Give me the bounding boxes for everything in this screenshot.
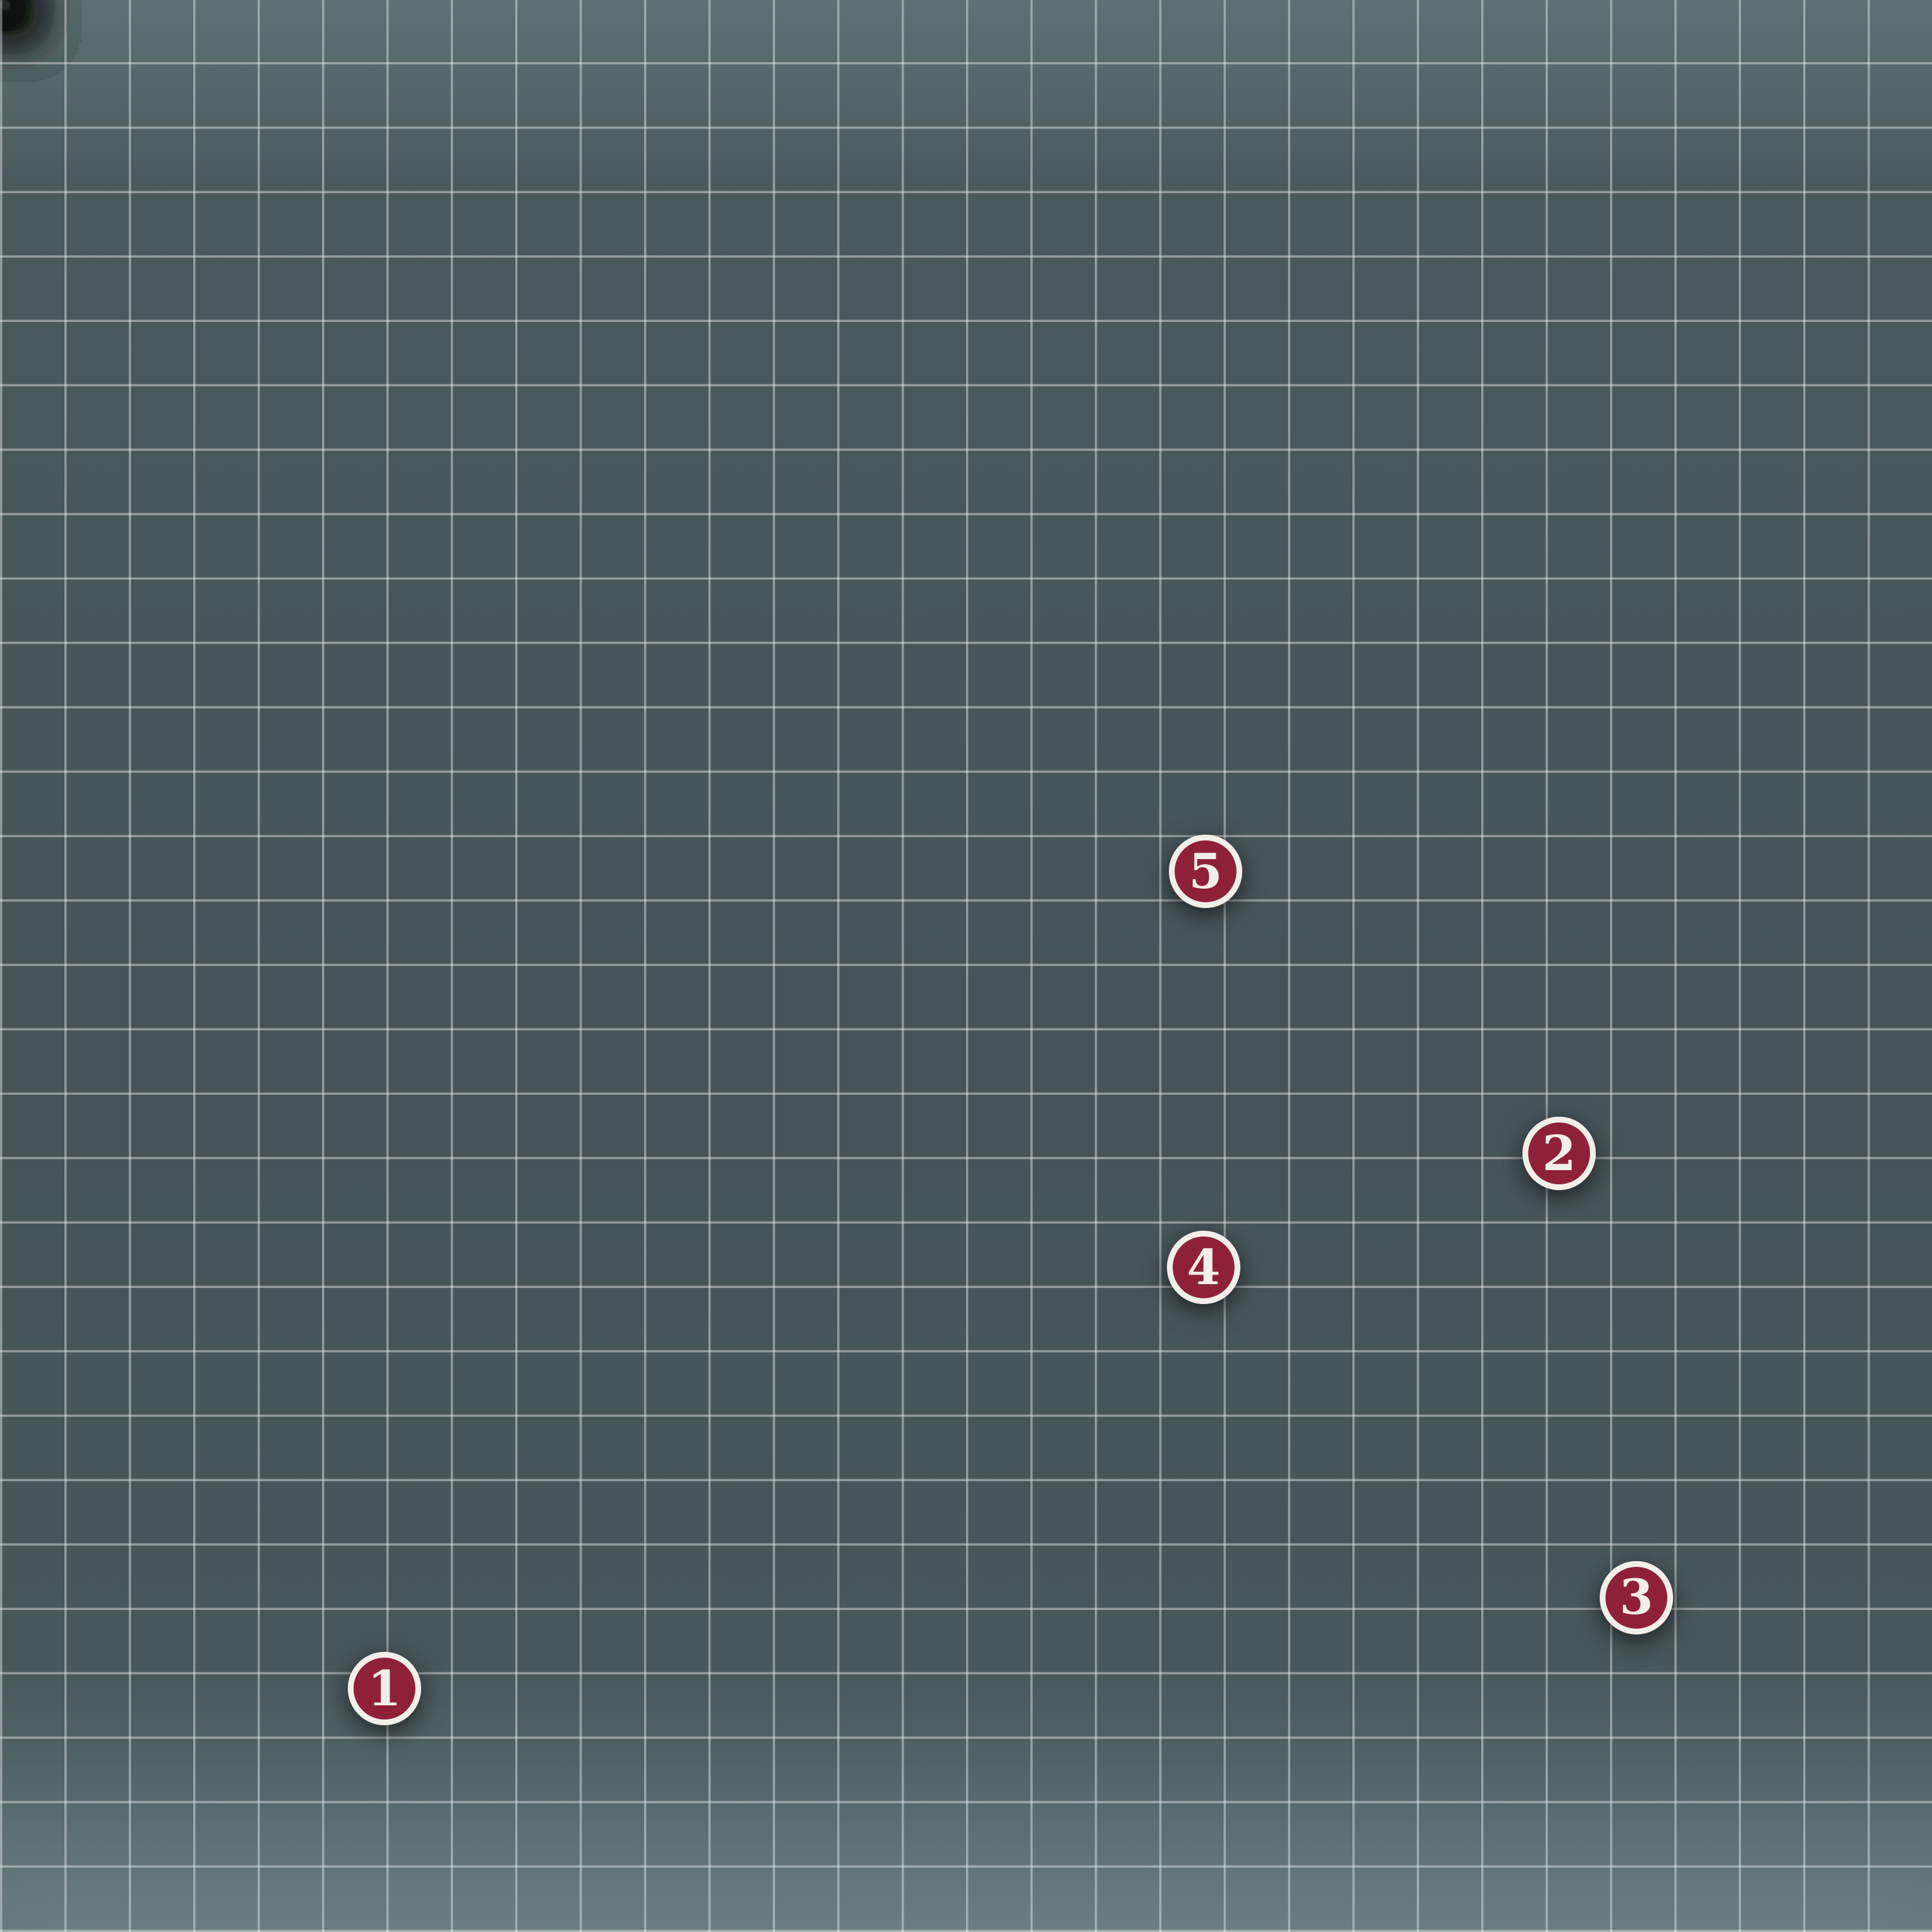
map-marker-5[interactable]: 5 xyxy=(1169,835,1242,908)
marker-label: 2 xyxy=(1542,1130,1576,1178)
vignette xyxy=(0,0,1932,1932)
battle-map: 1 2 3 4 5 xyxy=(0,0,1932,1932)
marker-label: 1 xyxy=(368,1665,401,1713)
marker-label: 3 xyxy=(1620,1573,1653,1622)
map-marker-2[interactable]: 2 xyxy=(1522,1117,1596,1190)
marker-label: 5 xyxy=(1189,848,1222,896)
map-marker-4[interactable]: 4 xyxy=(1167,1231,1240,1304)
map-marker-3[interactable]: 3 xyxy=(1600,1561,1673,1634)
marker-label: 4 xyxy=(1187,1244,1220,1292)
map-marker-1[interactable]: 1 xyxy=(348,1652,421,1725)
